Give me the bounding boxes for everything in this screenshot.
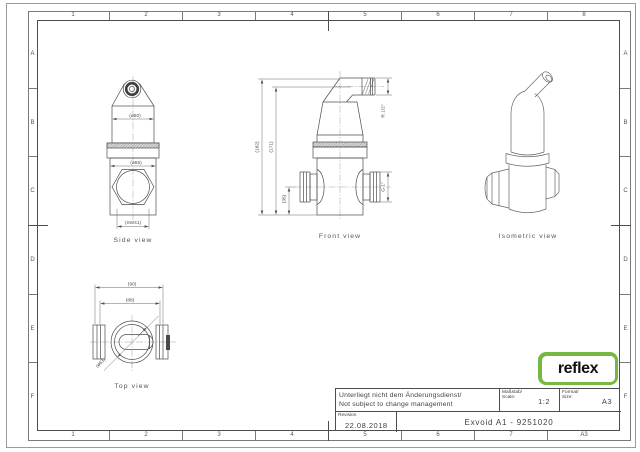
zone-label: 4 [255,431,328,441]
zone-label: 5 [328,431,401,441]
dim-thread-g1: G 1" [381,182,387,192]
zone-label: 3 [182,431,255,441]
zone-label: F [620,362,631,431]
dim-thread-r12: R 1/2" [381,104,387,117]
side-view-label: Side view [114,237,153,244]
zone-label: 7 [474,431,547,441]
zone-label: E [620,294,631,363]
format-cell: Format/ Size: A3 [559,389,621,411]
zone-label: A [620,20,631,88]
scale-label-en: Scale: [502,395,522,400]
zone-label: 7 [474,11,547,20]
front-view-label: Front view [319,233,361,240]
dim-dia50: (ø50) [129,113,141,119]
zone-label: 1 [37,11,109,20]
front-view-drawing: (182) (171) (35) R 1/2" G 1" Front view [250,68,400,248]
zone-label: B [620,88,631,157]
zone-label: 1 [37,431,109,441]
zone-label: 5 [328,11,401,20]
zone-label: 2 [109,11,182,20]
top-view-drawing: (90) (88) (ø63) Top view [90,275,185,395]
format-label-en: Size: [562,395,579,400]
zone-label: D [28,225,37,294]
revision-cell: Revision 22.08.2018 [336,411,396,432]
top-view-label: Top view [114,383,149,390]
revision-label: Revision [338,413,356,418]
side-vent-nozzle [123,80,141,98]
zone-label: E [28,294,37,363]
isometric-valve-body [485,70,559,213]
zone-label: B [28,88,37,157]
scale-value: 1:2 [538,397,550,406]
dim-171: (171) [269,141,275,153]
zone-label: 6 [401,11,474,20]
center-mark [28,225,48,226]
zone-label: A [28,20,37,88]
zone-label: 3 [182,11,255,20]
reflex-logo-inner: reflex [542,356,615,382]
zone-label: 8 [547,11,620,20]
dim-182: (182) [255,141,261,153]
zone-label: 2 [109,431,182,441]
zone-label: C [620,156,631,225]
zone-label: D [620,225,631,294]
dim-sw41: (SW41) [125,220,142,226]
title-block: Unterliegt nicht dem Änderungsdienst/ No… [335,388,620,431]
zone-label: 6 [401,431,474,441]
drawing-sheet: 1 2 3 4 5 6 7 8 1 2 3 4 5 6 7 A3 A B C D… [0,0,640,452]
zone-label: F [28,362,37,431]
drawing-title: Exvoid A1 - 9251020 [396,411,621,432]
center-mark [328,421,329,441]
format-value: A3 [602,397,612,406]
reflex-logo-text: reflex [558,360,598,378]
dim-88: (88) [126,298,135,304]
dim-dia55: (ø55) [130,160,142,166]
change-note-en: Not subject to change management [339,400,496,409]
side-view-drawing: (ø50) (ø55) (SW41) Side view [95,70,175,250]
dim-90: (90) [128,282,137,288]
center-mark [611,225,631,226]
zone-label: A3 [547,431,620,441]
scale-cell: Maßstab/ Scale: 1:2 [499,389,559,411]
dim-35: (35) [282,194,288,203]
change-note: Unterliegt nicht dem Änderungsdienst/ No… [336,389,499,411]
change-note-de: Unterliegt nicht dem Änderungsdienst/ [339,391,496,400]
zone-label: C [28,156,37,225]
isometric-view-drawing: Isometric view [478,68,578,248]
reflex-logo: reflex [538,352,618,385]
revision-date: 22.08.2018 [345,421,388,430]
isometric-view-label: Isometric view [499,233,557,240]
center-mark [328,11,329,31]
zone-label: 4 [255,11,328,20]
